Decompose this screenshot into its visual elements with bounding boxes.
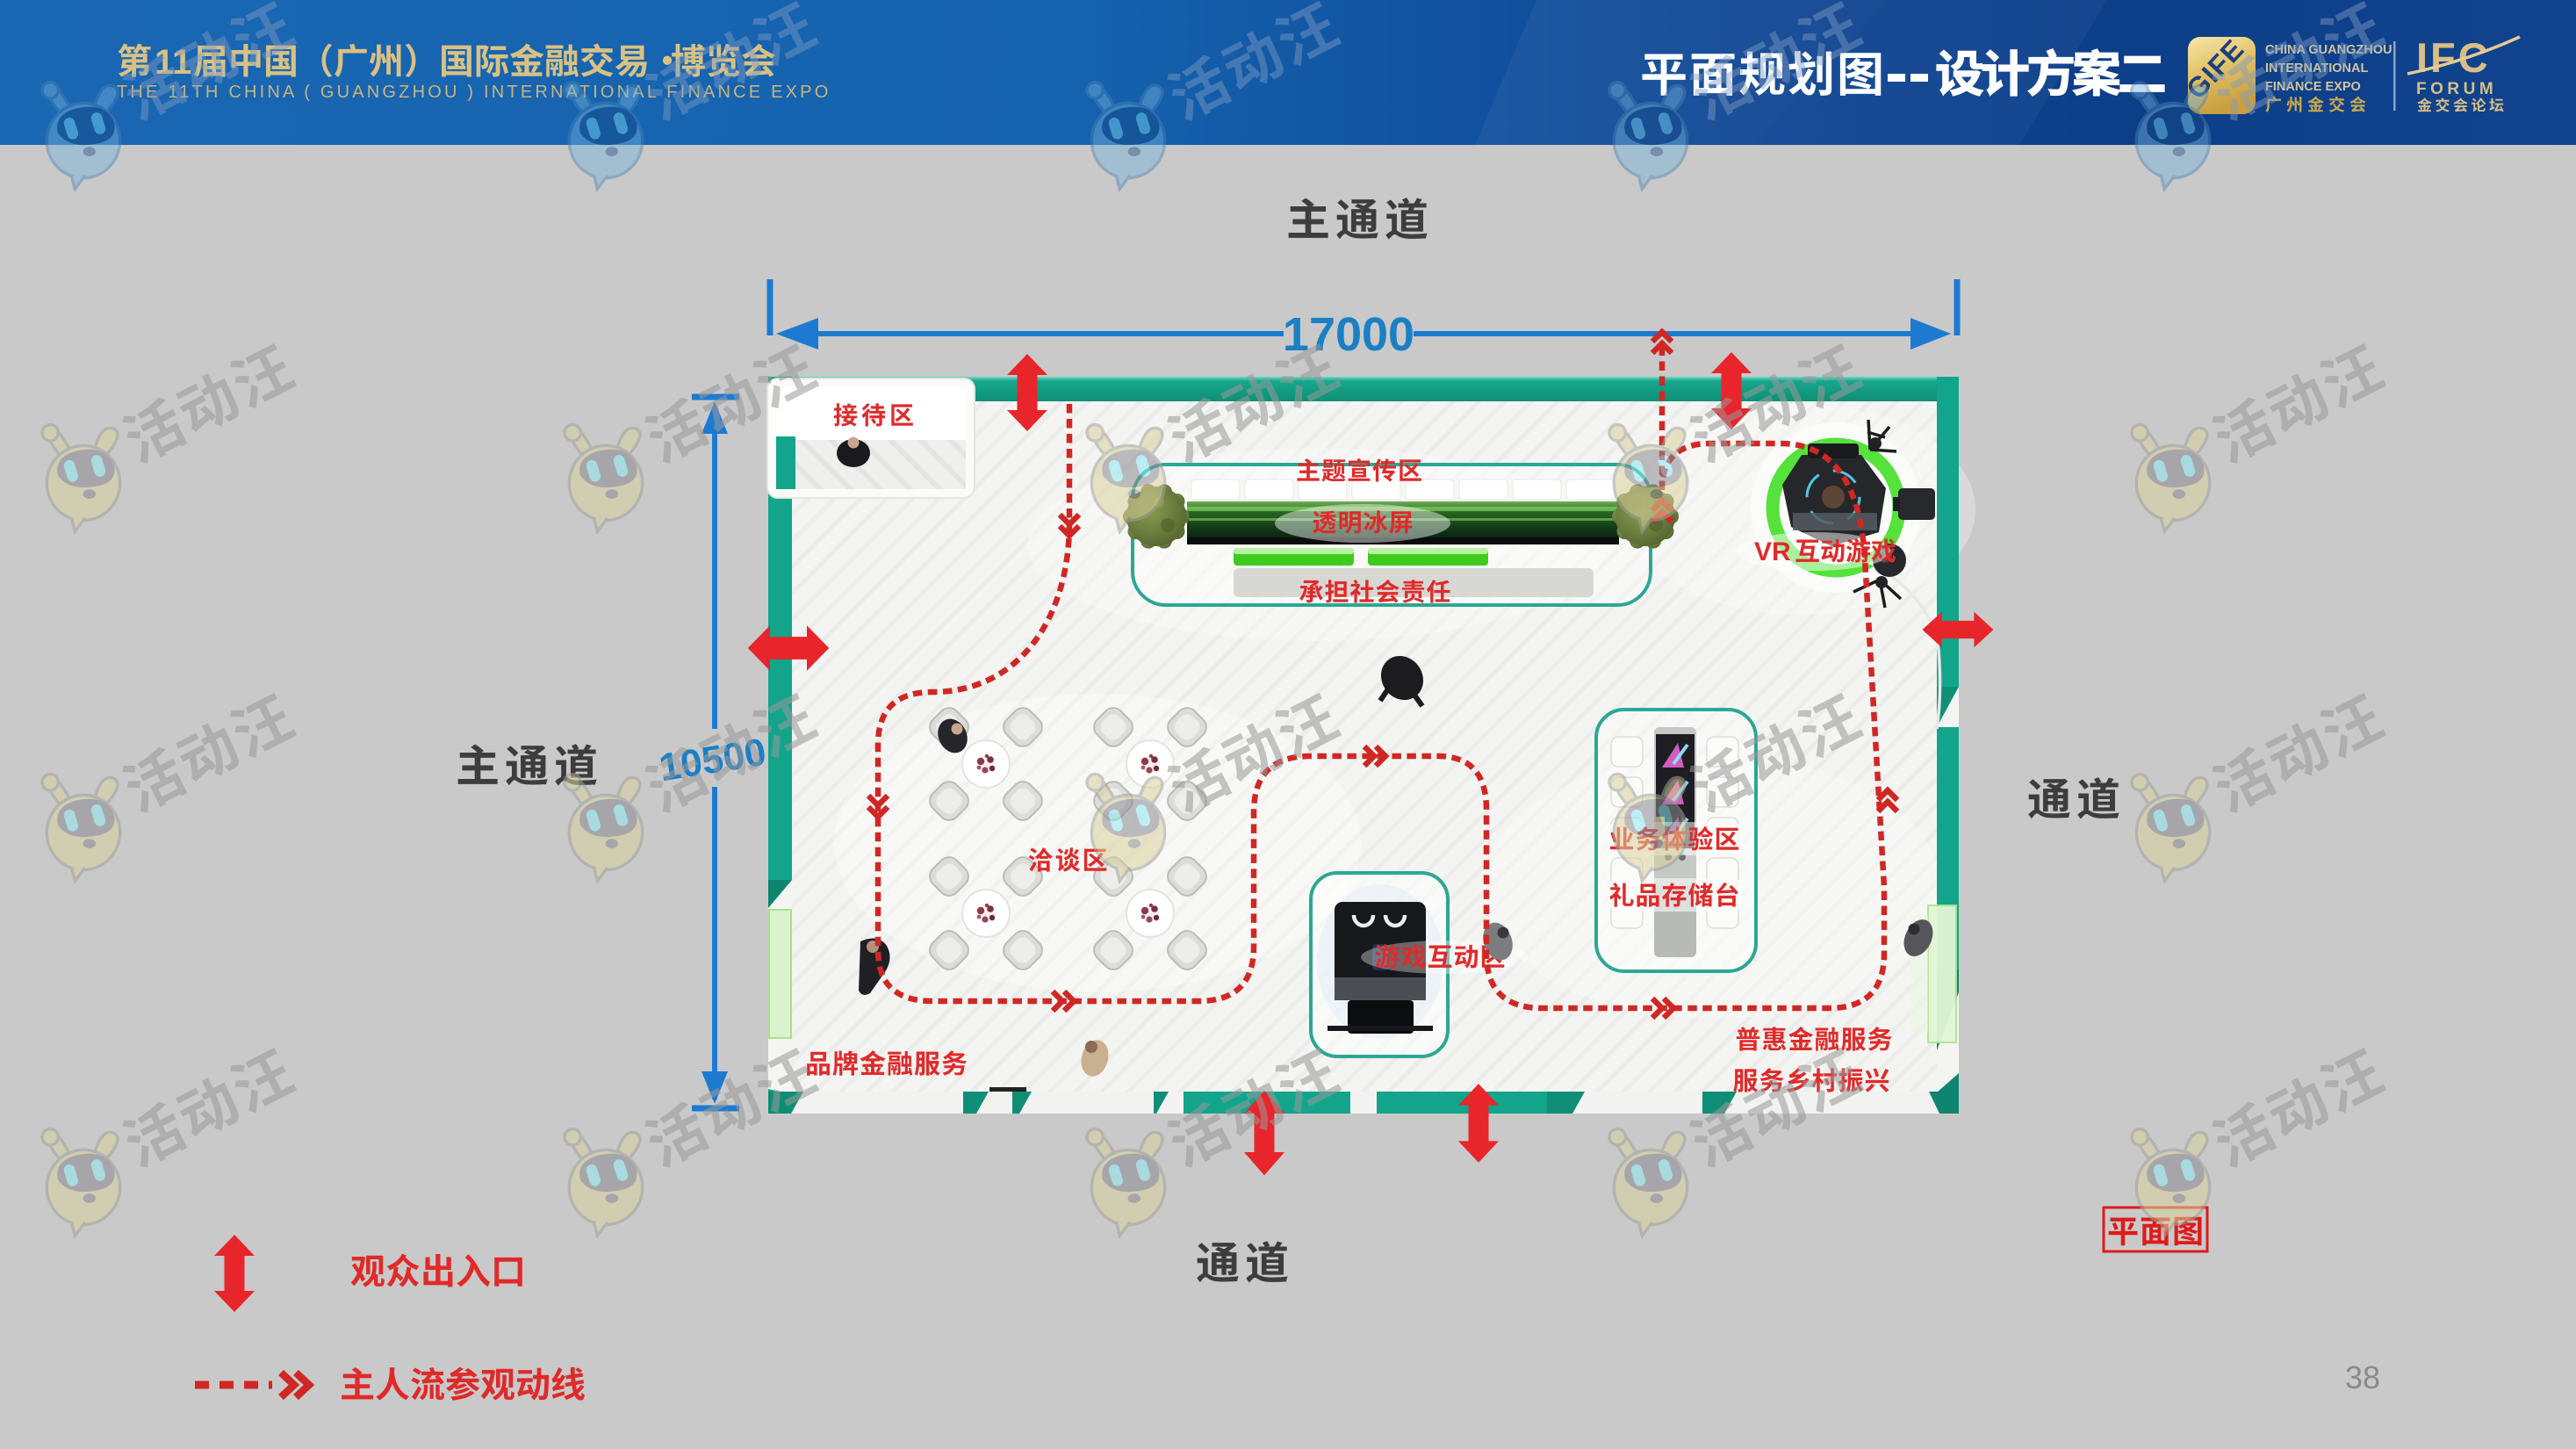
svg-text:FORUM: FORUM	[2416, 80, 2497, 98]
svg-text:THE 11TH CHINA ( GUANGZHOU ) I: THE 11TH CHINA ( GUANGZHOU ) INTERNATION…	[117, 83, 831, 102]
svg-text:IFC: IFC	[2416, 34, 2491, 81]
svg-text:FINANCE EXPO: FINANCE EXPO	[2265, 80, 2361, 94]
svg-text:VR: VR	[1754, 537, 1791, 566]
svg-text:38: 38	[2345, 1359, 2380, 1395]
